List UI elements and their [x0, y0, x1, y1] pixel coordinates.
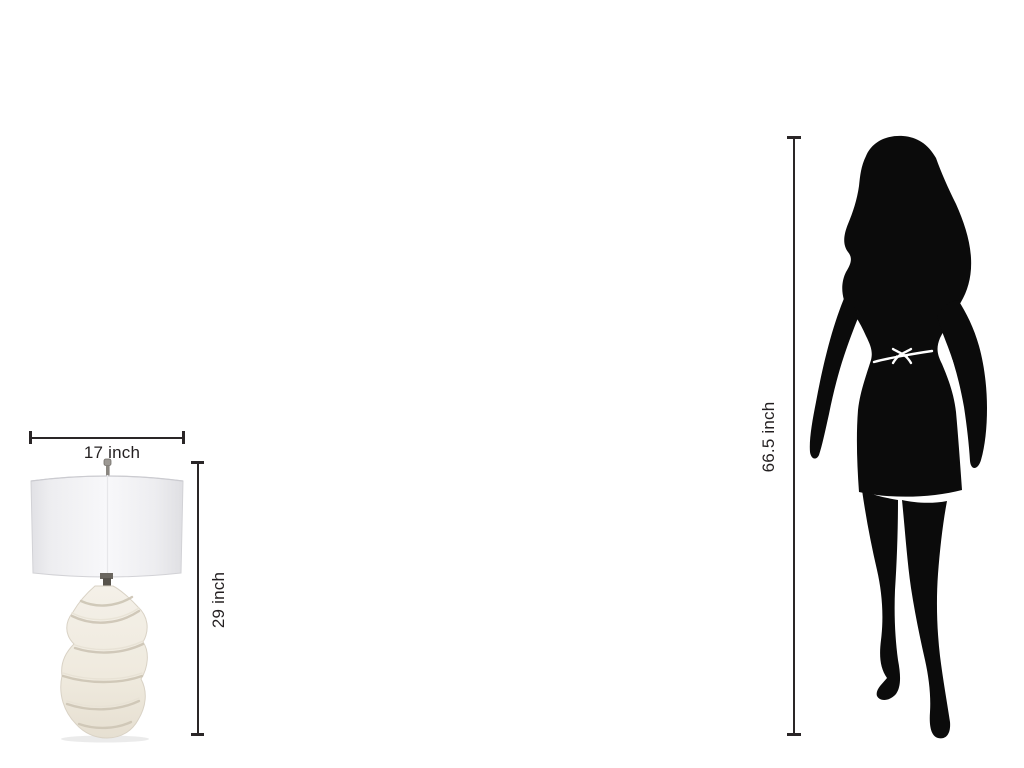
lamp-height-label: 29 inch [209, 555, 229, 645]
lamp-width-dimension-line [30, 437, 184, 439]
person-height-label: 66.5 inch [759, 387, 779, 487]
woman-silhouette-illustration [780, 130, 1000, 745]
lamp-finial-icon [104, 459, 111, 476]
lamp-width-tick-right [182, 431, 185, 444]
size-comparison-figure: 17 inch 29 inch [0, 0, 1024, 768]
silhouette-right-leg [902, 500, 950, 738]
table-lamp-illustration [20, 450, 200, 745]
lamp-base [61, 586, 148, 738]
silhouette-left-leg [862, 490, 900, 700]
silhouette-left-arm [810, 296, 858, 459]
